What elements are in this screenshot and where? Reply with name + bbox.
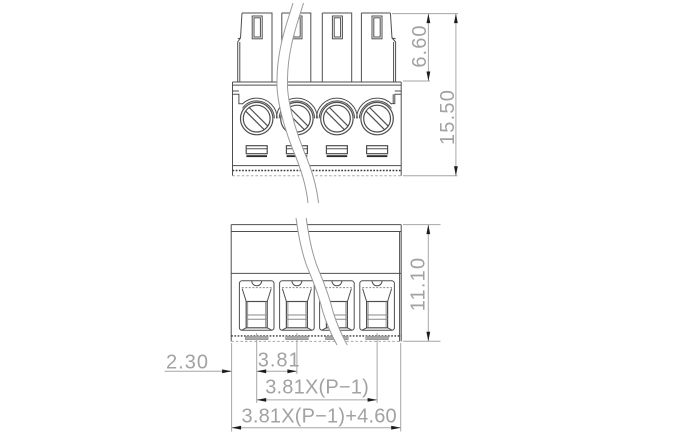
svg-text:6.60: 6.60 (409, 24, 431, 67)
svg-text:2.30: 2.30 (166, 351, 209, 373)
svg-text:11.10: 11.10 (408, 257, 430, 312)
svg-text:3.81: 3.81 (258, 349, 301, 371)
svg-text:3.81X(P−1)+4.60: 3.81X(P−1)+4.60 (242, 405, 397, 427)
svg-text:15.50: 15.50 (437, 89, 459, 145)
svg-text:3.81X(P−1): 3.81X(P−1) (265, 377, 369, 399)
